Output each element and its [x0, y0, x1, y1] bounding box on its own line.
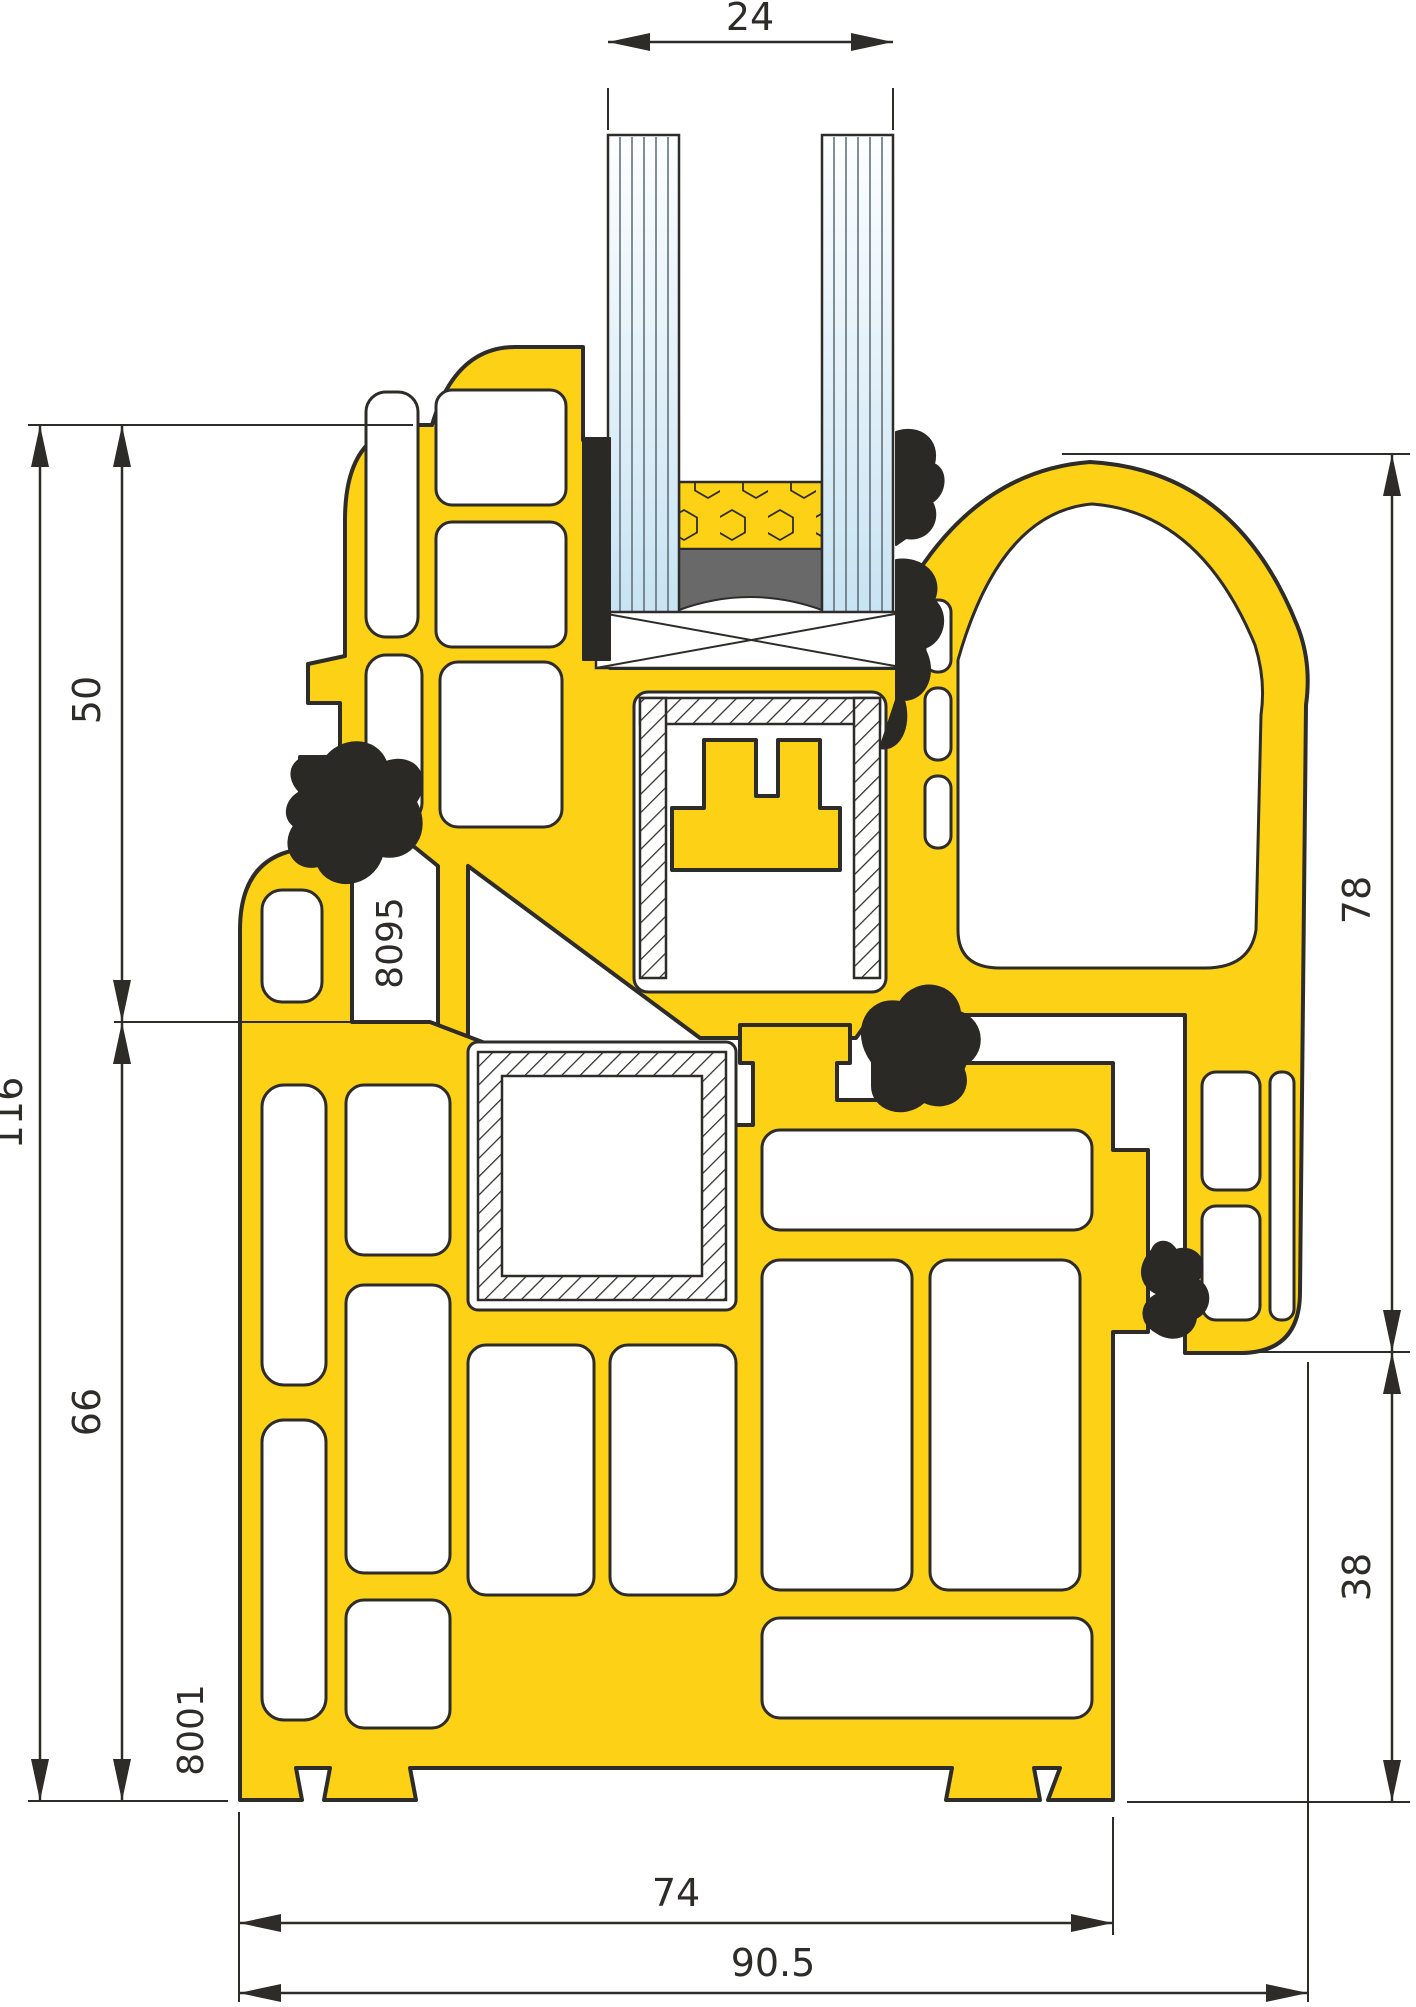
- profile-label-8001: 8001: [171, 1684, 212, 1776]
- frame-chamber: [346, 1085, 450, 1255]
- glazing-gasket-right-upper: [896, 430, 944, 545]
- frame-chamber: [468, 1345, 594, 1595]
- sash-wall-slot: [925, 688, 951, 760]
- sash-leg-chamber: [1202, 1072, 1260, 1190]
- arrowhead-left: [608, 33, 650, 51]
- frame-chamber: [346, 1285, 450, 1573]
- dim-label-24: 24: [726, 0, 774, 39]
- glass-pane-left: [608, 135, 679, 613]
- arrowhead-left: [239, 1984, 281, 2002]
- setting-block: [596, 612, 906, 668]
- glazing-gasket-left: [583, 438, 610, 660]
- edge-sealant: [679, 549, 822, 610]
- technical-drawing-window-profile-section: 24 116 50 66 78 38: [0, 0, 1416, 2007]
- dim-label-38: 38: [1335, 1553, 1379, 1601]
- sash-chamber: [436, 390, 566, 505]
- frame-chamber: [262, 1085, 326, 1385]
- arrowhead-up: [113, 1022, 131, 1064]
- dim-label-50: 50: [65, 676, 109, 724]
- drawing-canvas: 24 116 50 66 78 38: [0, 0, 1416, 2007]
- dim-label-90-5: 90.5: [731, 1941, 816, 1985]
- dimension-glass-24: 24: [608, 0, 893, 130]
- arrowhead-right: [851, 33, 893, 51]
- arrowhead-left: [239, 1914, 281, 1932]
- frame-chamber: [262, 1420, 326, 1720]
- arrowhead-down: [113, 980, 131, 1022]
- frame-chamber: [762, 1130, 1092, 1230]
- sash-chamber: [440, 662, 562, 827]
- sash-chamber: [436, 522, 566, 647]
- arrowhead-down: [113, 1759, 131, 1801]
- arrowhead-up: [1383, 454, 1401, 496]
- frame-chamber: [762, 1260, 912, 1590]
- sash-dome-cavity: [958, 504, 1263, 968]
- arrowhead-right: [1266, 1984, 1308, 2002]
- dim-label-74: 74: [652, 1871, 700, 1915]
- arrowhead-up: [113, 425, 131, 467]
- sash-leg-chamber: [1270, 1072, 1294, 1320]
- glass-pane-right: [822, 135, 893, 613]
- frame-chamber: [762, 1618, 1092, 1718]
- frame-chamber: [262, 890, 322, 1002]
- sash-leg-chamber: [1202, 1206, 1260, 1320]
- insulated-glass-unit: [596, 135, 906, 668]
- profile-label-8095: 8095: [370, 897, 411, 989]
- sash-chamber: [366, 392, 418, 637]
- arrowhead-up: [1383, 1352, 1401, 1394]
- arrowhead-down: [1383, 1760, 1401, 1802]
- arrowhead-down: [31, 1759, 49, 1801]
- spacer-bar: [679, 482, 822, 549]
- center-seal-8095: [287, 742, 422, 883]
- frame-chamber: [346, 1600, 450, 1728]
- frame-chamber: [930, 1260, 1080, 1590]
- dim-label-66: 66: [65, 1388, 109, 1436]
- arrowhead-down: [1383, 1310, 1401, 1352]
- frame-chamber: [610, 1345, 736, 1595]
- arrowhead-up: [31, 425, 49, 467]
- dim-label-116: 116: [0, 1077, 31, 1150]
- arrowhead-right: [1071, 1914, 1113, 1932]
- dim-label-78: 78: [1335, 876, 1379, 924]
- sash-wall-slot: [925, 776, 951, 848]
- frame-steel-reinforcement: [468, 1042, 736, 1310]
